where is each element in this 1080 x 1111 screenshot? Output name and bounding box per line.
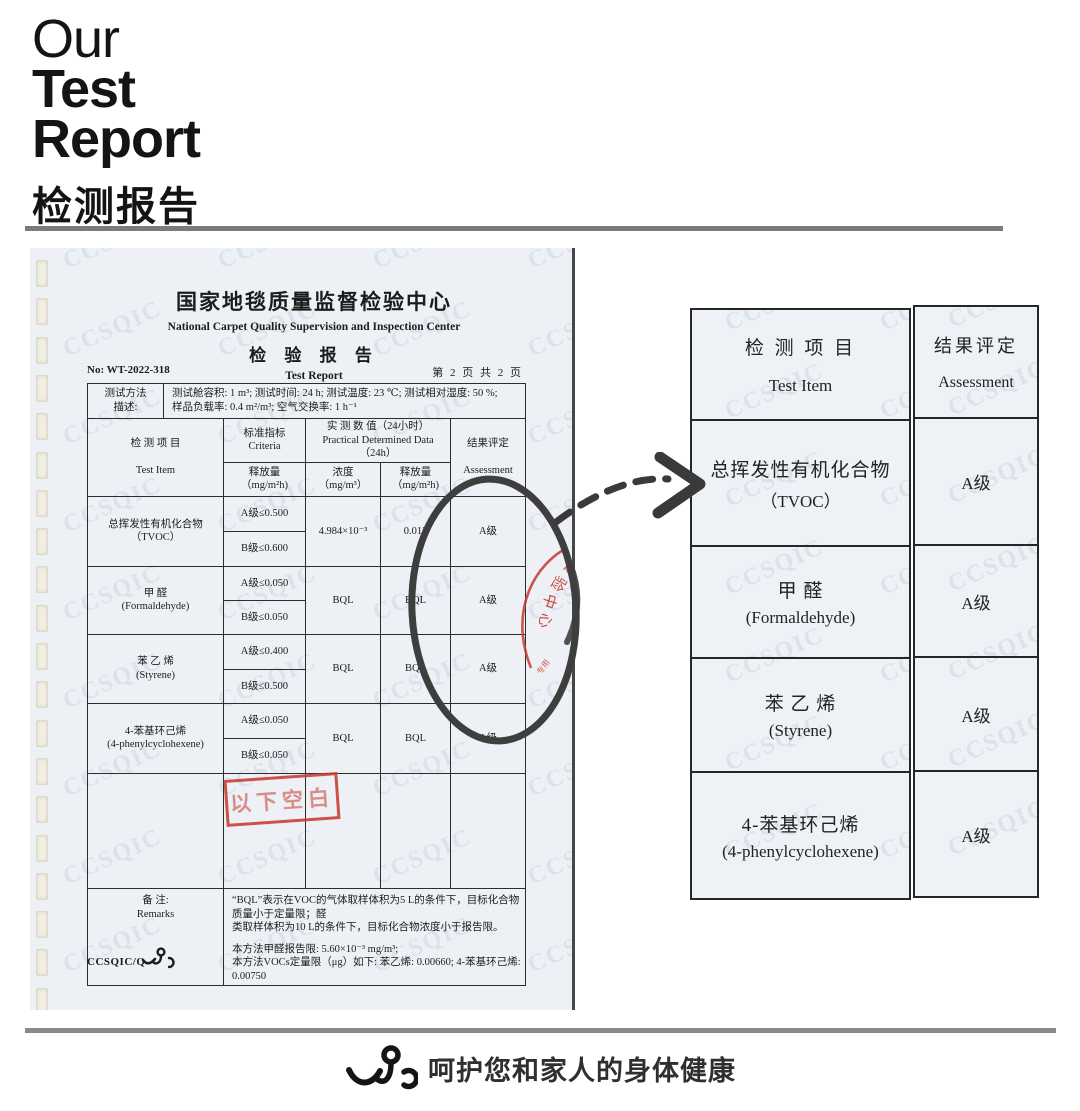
summary-header-assessment: 结果评定 Assessment: [915, 307, 1037, 419]
summary-item-column: CCSQICCCSQICCCSQICCCSQICCCSQICCCSQICCCSQ…: [690, 308, 911, 900]
summary-item: 总挥发性有机化合物 （TVOC）: [692, 421, 909, 547]
item-name: 甲 醛 (Formaldehyde): [88, 566, 224, 634]
brand-subtitle-cn: 检测报告: [32, 174, 200, 232]
summary-item: 甲 醛 (Formaldehyde): [692, 547, 909, 659]
criteria-a: A级≤0.050: [224, 703, 306, 738]
report-code: CCSQIC/Q: [87, 946, 177, 968]
top-divider: [25, 226, 1003, 231]
criteria-b: B级≤0.600: [224, 531, 306, 566]
summary-header-item: 检 测 项 目 Test Item: [692, 310, 909, 421]
brand-mark-icon: [344, 1042, 418, 1094]
criteria-a: A级≤0.500: [224, 496, 306, 531]
brand-word-report: Report: [32, 114, 200, 164]
criteria-b: B级≤0.050: [224, 600, 306, 634]
criteria-b: B级≤0.050: [224, 738, 306, 773]
summary-grade: A级: [915, 546, 1037, 658]
org-name-en: National Carpet Quality Supervision and …: [56, 321, 572, 333]
summary-item: 苯 乙 烯 (Styrene): [692, 659, 909, 773]
col-header-release-criteria: 释放量 （mg/m²h): [224, 462, 306, 496]
report-number: No: WT-2022-318: [87, 364, 170, 380]
brand-word-our: Our: [32, 14, 200, 64]
arrow-icon: [542, 452, 714, 537]
footer-divider: [25, 1028, 1056, 1033]
summary-grade: A级: [915, 419, 1037, 546]
item-name: 苯 乙 烯 (Styrene): [88, 634, 224, 703]
brand-logo: Our Test Report 检测报告: [32, 14, 200, 232]
page-indicator: 第 2 页 共 2 页: [432, 364, 523, 380]
remarks-text: “BQL”表示在VOC的气体取样体积为5 L的条件下，目标化合物质量小于定量限；…: [224, 888, 526, 985]
page: Our Test Report 检测报告 CCSQICCCSQICCCSQICC…: [0, 0, 1080, 1111]
remarks-row: 备 注: Remarks “BQL”表示在VOC的气体取样体积为5 L的条件下，…: [88, 888, 526, 985]
item-name: 总挥发性有机化合物 （TVOC）: [88, 496, 224, 566]
org-name-cn: 国家地毯质量监督检验中心: [56, 286, 572, 316]
measured-concentration: BQL: [306, 566, 381, 634]
col-header-concentration: 浓度 （mg/m³）: [306, 462, 381, 496]
col-header-criteria: 标准指标 Criteria: [224, 419, 306, 463]
criteria-a: A级≤0.050: [224, 566, 306, 600]
item-name: 4-苯基环己烯 (4-phenylcyclohexene): [88, 703, 224, 773]
measured-concentration: 4.984×10⁻³: [306, 496, 381, 566]
method-description: 测试舱容积: 1 m³; 测试时间: 24 h; 测试温度: 23 ℃; 测试相…: [164, 384, 526, 419]
footer: 呵护您和家人的身体健康: [0, 1042, 1080, 1094]
summary-item: 4-苯基环己烯 (4-phenylcyclohexene): [692, 773, 909, 898]
summary-grade: A级: [915, 658, 1037, 772]
footer-slogan: 呵护您和家人的身体健康: [428, 1049, 736, 1088]
col-header-measured: 实 测 数 值（24小时） Practical Determined Data（…: [306, 419, 451, 463]
report-title-cn: 检 验 报 告: [56, 341, 572, 366]
signature-squiggle-icon: [141, 946, 177, 970]
remarks-label: 备 注: Remarks: [88, 888, 224, 985]
col-header-item: 检 测 项 目 Test Item: [88, 419, 224, 497]
report-number-line: No: WT-2022-318 第 2 页 共 2 页: [87, 364, 525, 383]
criteria-b: B级≤0.500: [224, 669, 306, 703]
blank-below-stamp: 以下空白: [223, 772, 340, 827]
summary-assessment-column: CCSQICCCSQICCCSQICCCSQICCCSQICCCSQICCCSQ…: [913, 305, 1039, 898]
method-table: 测试方法 描述: 测试舱容积: 1 m³; 测试时间: 24 h; 测试温度: …: [87, 383, 526, 419]
brand-word-test: Test: [32, 64, 200, 114]
summary-grade: A级: [915, 772, 1037, 896]
measured-concentration: BQL: [306, 634, 381, 703]
method-label: 测试方法 描述:: [88, 384, 164, 419]
measured-concentration: BQL: [306, 703, 381, 773]
criteria-a: A级≤0.400: [224, 634, 306, 669]
